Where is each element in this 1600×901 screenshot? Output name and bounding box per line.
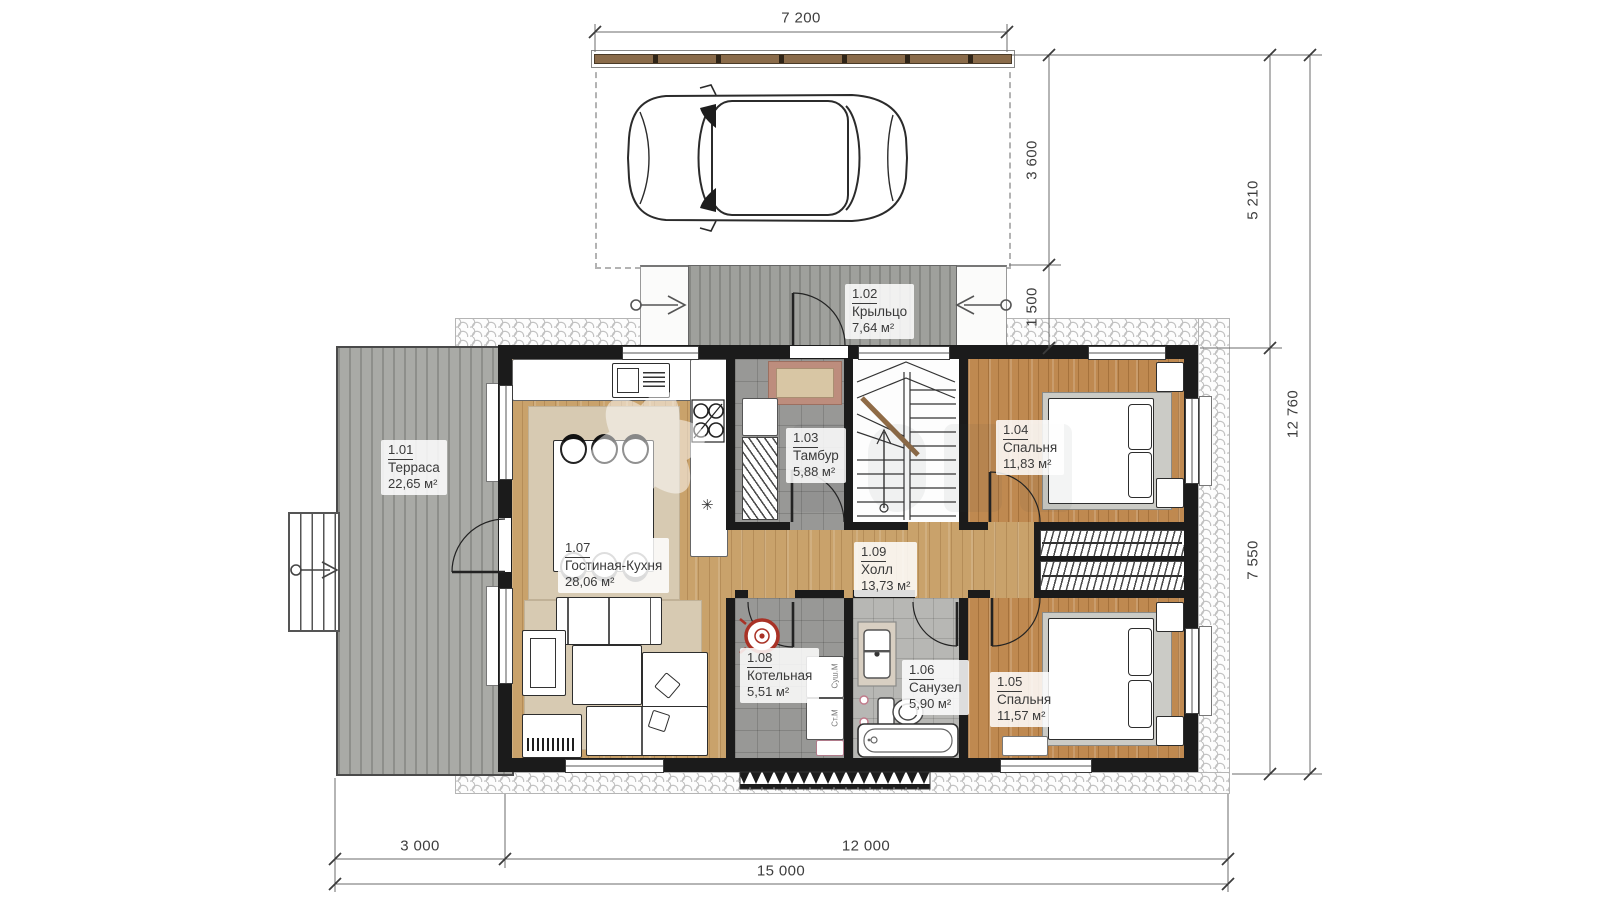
dim-parking-depth: 3 600 <box>1024 140 1041 180</box>
wall-boiler-bathroom <box>844 598 853 758</box>
room-area: 13,73 м² <box>861 578 910 594</box>
wall-vestibule-hall-b <box>844 522 908 530</box>
room-label-terrace: 1.01 Терраса 22,65 м² <box>381 440 447 495</box>
wall-living-boiler <box>726 598 735 758</box>
hall-wardrobe-upper <box>1040 530 1186 558</box>
tv-stand-books <box>527 738 575 751</box>
room-name: Холл <box>861 562 910 578</box>
wall-bedroom1-hall-a <box>968 522 988 530</box>
room-area: 5,51 м² <box>747 684 812 700</box>
room-name: Крыльцо <box>852 304 907 320</box>
porch-deck <box>688 265 957 352</box>
dining-chair <box>560 434 587 464</box>
room-number: 1.07 <box>565 540 590 558</box>
window-stairs-top <box>858 346 950 360</box>
bed1-nightstand <box>1156 362 1184 392</box>
window-bedroom1-top <box>1088 346 1166 360</box>
room-name: Спальня <box>1003 440 1057 456</box>
room-label-living-kitchen: 1.07 Гостиная-Кухня 28,06 м² <box>558 538 669 593</box>
hall-wardrobe-lower <box>1040 561 1186 592</box>
wall-bedroom1-hall-b <box>1040 522 1184 530</box>
room-area: 11,83 м² <box>1003 456 1057 472</box>
bed1-pillow <box>1128 452 1152 498</box>
room-area: 5,88 м² <box>793 464 839 480</box>
bed1-pillow <box>1128 404 1152 450</box>
room-area: 5,90 м² <box>909 696 962 712</box>
window-sill <box>1199 626 1212 716</box>
room-name: Тамбур <box>793 448 839 464</box>
bed2-nightstand <box>1156 602 1184 632</box>
room-name: Терраса <box>388 460 440 476</box>
wall-hall-bedroom2-a <box>968 590 990 598</box>
pergola-wood-bar <box>594 54 1012 64</box>
window-sill <box>1199 396 1212 486</box>
window-living-left-upper <box>499 385 513 480</box>
window-bedroom2-right <box>1185 628 1199 714</box>
corner-sofa-base <box>586 706 708 756</box>
room-number: 1.02 <box>852 286 877 304</box>
dim-porch-depth: 1 500 <box>1024 287 1041 327</box>
room-number: 1.04 <box>1003 422 1028 440</box>
wall-stairs-bedroom1 <box>959 359 968 530</box>
pergola-beam <box>591 50 1015 68</box>
wall-living-vestibule <box>726 359 735 530</box>
wardrobe-rod <box>1042 542 1182 544</box>
room-number: 1.05 <box>997 674 1022 692</box>
dryer-label: Суш.М <box>831 663 840 688</box>
bed2-nightstand <box>1156 716 1184 746</box>
dim-right-total: 12 760 <box>1285 390 1302 438</box>
parking-area <box>595 52 1011 269</box>
room-number: 1.08 <box>747 650 772 668</box>
window-living-bottom <box>565 759 664 773</box>
room-name: Спальня <box>997 692 1051 708</box>
room-label-porch: 1.02 Крыльцо 7,64 м² <box>845 284 914 339</box>
stone-apron-right <box>1198 318 1230 794</box>
window-bedroom2-bottom <box>1000 759 1092 773</box>
bed1-nightstand <box>1156 478 1184 508</box>
boiler-fixture-box <box>816 740 844 756</box>
dim-bottom-terrace: 3 000 <box>400 838 440 855</box>
window-bedroom1-right <box>1185 398 1199 484</box>
appliance-vents <box>643 369 665 390</box>
terrace-door-opening <box>499 518 511 572</box>
room-name: Гостиная-Кухня <box>565 558 662 574</box>
wardrobe-rod <box>1042 575 1182 577</box>
porch-side-left <box>640 265 690 354</box>
room-area: 22,65 м² <box>388 476 440 492</box>
room-number: 1.03 <box>793 430 818 448</box>
dining-chair <box>591 434 618 464</box>
window-kitchen-top <box>622 346 699 360</box>
stone-apron-bottom <box>455 772 1230 794</box>
dim-top-width: 7 200 <box>781 10 821 27</box>
floor-stairs <box>853 359 959 522</box>
room-area: 11,57 м² <box>997 708 1051 724</box>
room-label-hall: 1.09 Холл 13,73 м² <box>854 542 917 597</box>
room-label-bedroom1: 1.04 Спальня 11,83 м² <box>996 420 1064 475</box>
wall-hall-bedroom2-b <box>1040 590 1184 598</box>
room-label-bathroom: 1.06 Санузел 5,90 м² <box>902 660 969 715</box>
room-label-vestibule: 1.03 Тамбур 5,88 м² <box>786 428 846 483</box>
room-name: Санузел <box>909 680 962 696</box>
snowflake-icon: ✳ <box>701 496 714 514</box>
dim-bottom-house: 12 000 <box>842 838 890 855</box>
wall-hall-boiler-a <box>735 590 748 598</box>
dim-bottom-total: 15 000 <box>757 863 805 880</box>
window-living-left-lower <box>499 588 513 684</box>
dining-chair <box>622 434 649 464</box>
bed2-bench <box>1002 736 1048 756</box>
room-label-bedroom2: 1.05 Спальня 11,57 м² <box>990 672 1058 727</box>
terrace-steps <box>288 512 340 632</box>
bed2-pillow <box>1128 628 1152 676</box>
vestibule-cabinet <box>742 398 778 436</box>
dim-right-upper: 5 210 <box>1245 180 1262 220</box>
washer-label: Ст.М <box>831 709 840 726</box>
bed2-pillow <box>1128 680 1152 728</box>
wall-vestibule-hall-a <box>735 522 790 530</box>
floor-plan: ✳ Суш.М <box>0 0 1600 901</box>
vestibule-rug <box>768 361 842 405</box>
room-area: 28,06 м² <box>565 574 662 590</box>
wall-hall-boiler-b <box>795 590 844 598</box>
entry-door-opening <box>790 346 848 358</box>
room-area: 7,64 м² <box>852 320 907 336</box>
wall-wardrobe-divider <box>1040 556 1184 561</box>
tv-stand <box>522 714 582 758</box>
room-number: 1.09 <box>861 544 886 562</box>
sofa-two-seat <box>556 597 662 645</box>
room-label-boiler: 1.08 Котельная 5,51 м² <box>740 648 819 703</box>
appliance-door <box>617 368 639 393</box>
kitchen-appliance-block <box>612 363 670 398</box>
coffee-table <box>572 645 642 705</box>
room-number: 1.01 <box>388 442 413 460</box>
kitchen-counter-side <box>690 359 728 557</box>
vestibule-wardrobe <box>742 437 778 520</box>
porch-side-right <box>955 265 1007 354</box>
armchair <box>522 630 566 696</box>
dim-right-house: 7 550 <box>1245 540 1262 580</box>
room-number: 1.06 <box>909 662 934 680</box>
room-name: Котельная <box>747 668 812 684</box>
